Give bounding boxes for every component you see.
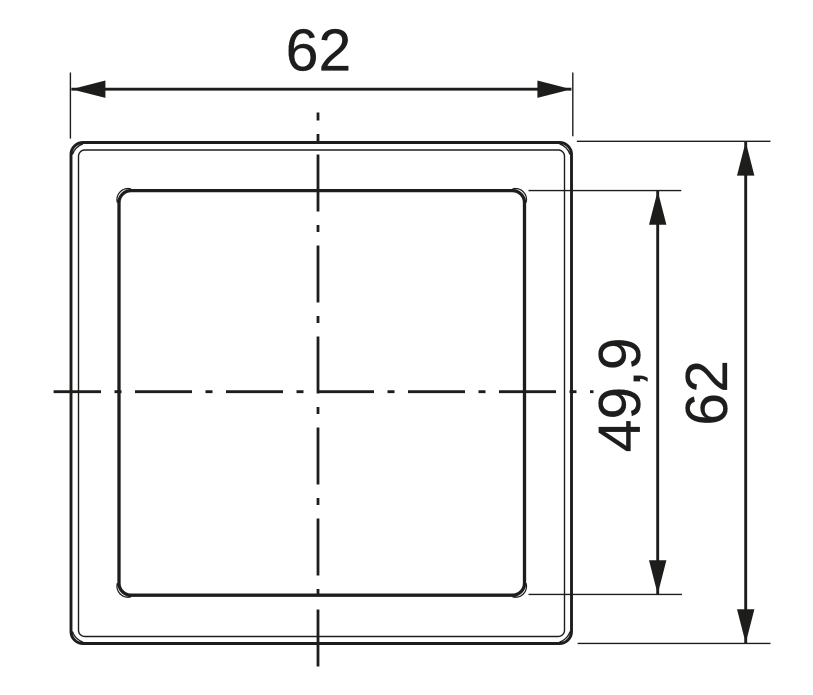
svg-text:62: 62: [286, 18, 352, 84]
svg-text:49,9: 49,9: [587, 337, 653, 452]
svg-text:62: 62: [674, 360, 740, 426]
